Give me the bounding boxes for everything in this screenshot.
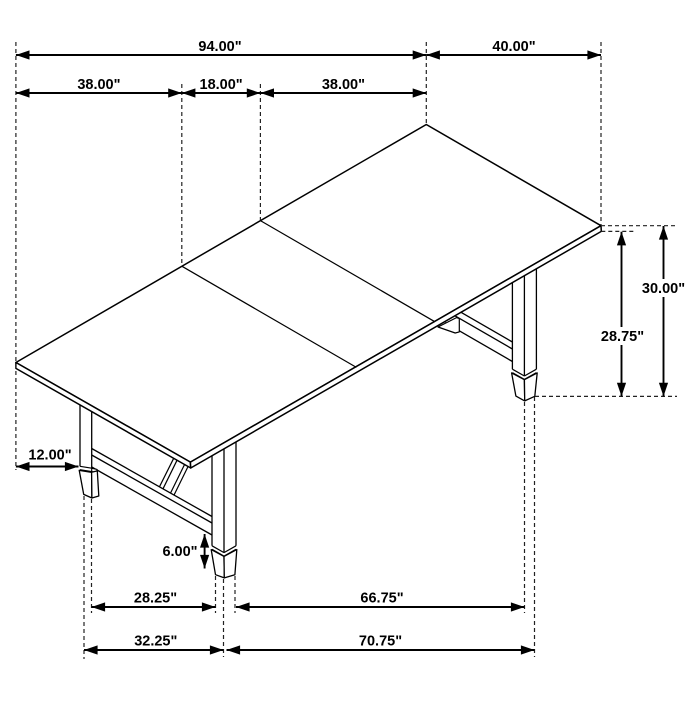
svg-text:32.25": 32.25" — [134, 634, 177, 650]
svg-text:94.00": 94.00" — [198, 39, 241, 55]
svg-text:70.75": 70.75" — [359, 634, 402, 650]
svg-text:28.25": 28.25" — [134, 591, 177, 607]
svg-text:38.00": 38.00" — [322, 77, 365, 93]
svg-text:6.00": 6.00" — [162, 544, 197, 560]
svg-text:38.00": 38.00" — [77, 77, 120, 93]
svg-text:28.75": 28.75" — [601, 329, 644, 345]
svg-text:18.00": 18.00" — [200, 77, 243, 93]
svg-text:66.75": 66.75" — [360, 591, 403, 607]
svg-text:12.00": 12.00" — [28, 448, 71, 464]
svg-text:30.00": 30.00" — [642, 281, 685, 297]
svg-text:40.00": 40.00" — [492, 39, 535, 55]
